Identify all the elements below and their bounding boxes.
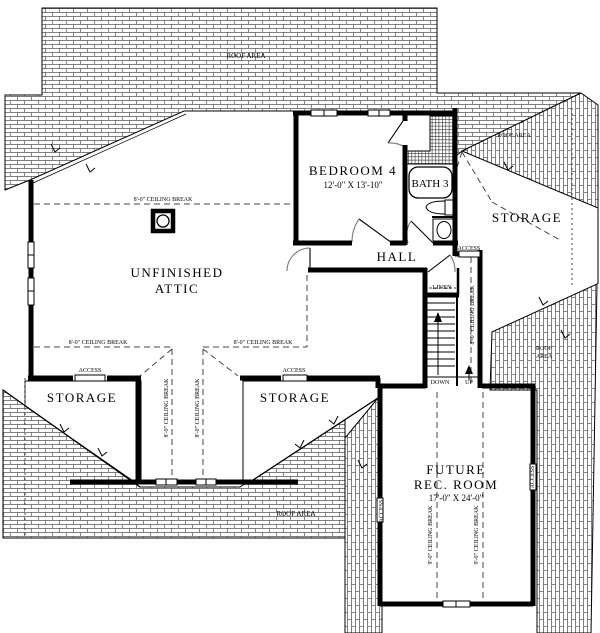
attic-line1-label: UNFINISHED <box>131 265 224 280</box>
roof-area-top-label: ROOF AREA <box>226 52 265 60</box>
cb-mid-left-label: 8'-0" CEILING BREAK <box>69 340 129 346</box>
floor-plan-drawing: ROOF AREAROOF AREAROOFAREAROOF AREA8'-0"… <box>0 0 600 633</box>
attic-window <box>28 242 34 268</box>
linen-door <box>428 255 455 272</box>
rec-line2-label: REC. ROOM <box>414 477 498 492</box>
linen-label: LINEN <box>432 284 452 291</box>
bottom-window <box>196 479 216 485</box>
roof-strip-right <box>490 284 597 633</box>
bedroom-window <box>311 110 337 116</box>
access-panel <box>283 375 307 381</box>
stair-up-arrow-head <box>465 365 473 374</box>
floor-plan-page: ROOF AREAROOF AREAROOFAREAROOF AREA8'-0"… <box>0 0 600 633</box>
chimney <box>153 211 173 231</box>
access-rec-r-label: ACCESS <box>530 466 536 489</box>
access-rec-l-label: ACCESS <box>379 500 385 523</box>
bedroom-dims-label: 12'-0" X 13'-10" <box>323 180 382 190</box>
bath-label: BATH 3 <box>412 178 449 190</box>
access-panel <box>75 375 105 381</box>
bottom-window <box>156 479 177 485</box>
access-storage-m-label: ACCESS <box>283 368 306 374</box>
rec-line1-label: FUTURE <box>426 462 486 477</box>
roof-areas <box>3 8 598 633</box>
bedroom-label: BEDROOM 4 <box>309 163 397 178</box>
access-stairs-label: ACCESS <box>458 246 481 252</box>
roof-area-bottom-label: ROOF AREA <box>276 510 315 518</box>
roof-area-topright-label: ROOF AREA <box>497 133 531 139</box>
rec-dims-label: 17'-0" X 24'-0" <box>429 493 484 503</box>
bath-door <box>407 221 433 243</box>
attic-hall-door <box>287 248 310 271</box>
storage-l-label: STORAGE <box>47 390 117 405</box>
bath-shelving-hatch <box>407 116 453 164</box>
down-label: DOWN <box>431 380 450 386</box>
bedroom-window <box>368 110 390 116</box>
bedroom-door <box>388 118 405 147</box>
rec-room-window <box>443 601 470 607</box>
sink <box>433 219 455 241</box>
roof-strip-left <box>345 398 382 633</box>
roof-area-right-2-label: AREA <box>536 354 553 360</box>
cb-attic-label: 8'-0" CEILING BREAK <box>134 197 194 203</box>
hall-label: HALL <box>377 249 418 264</box>
storage-m-label: STORAGE <box>260 390 330 405</box>
cb-rec1-label: 9'-0" CEILING BREAK <box>428 505 434 565</box>
access-storage-l-label: ACCESS <box>79 368 102 374</box>
up-label: UP <box>465 380 473 386</box>
attic-line2-label: ATTIC <box>155 281 199 296</box>
roof-area-right-1-label: ROOF <box>536 346 553 352</box>
cb-mid-right-label: 8'-0" CEILING BREAK <box>234 340 294 346</box>
cb-stairs-label: 8'-0" CEILING BREAK <box>470 285 476 345</box>
cb-v2-label: 8'-0" CEILING BREAK <box>195 378 201 438</box>
toilet <box>426 200 453 215</box>
cb-rec2-label: 9'-0" CEILING BREAK <box>474 505 480 565</box>
cb-v1-label: 8'-0" CEILING BREAK <box>164 378 170 438</box>
attic-window <box>28 278 34 305</box>
storage-r-label: STORAGE <box>492 210 562 225</box>
bedroom-hall-door <box>352 219 392 243</box>
